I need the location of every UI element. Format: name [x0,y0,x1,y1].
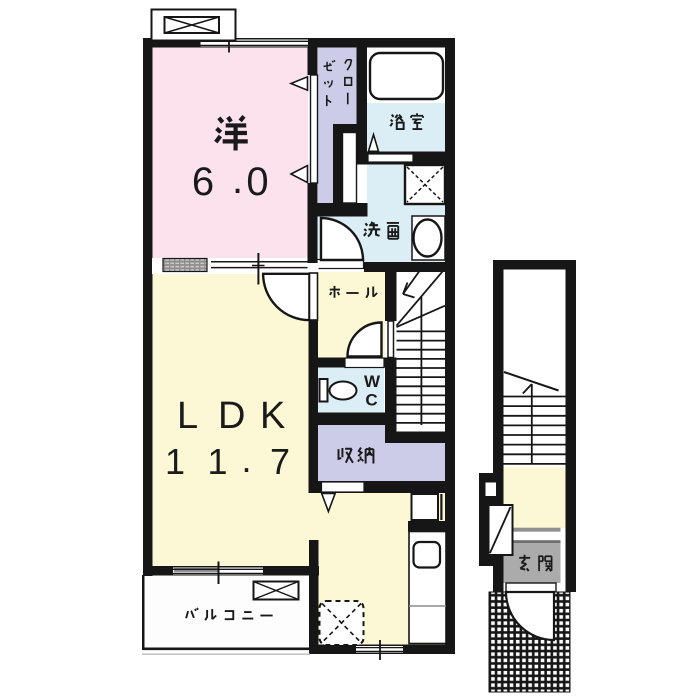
svg-text:K: K [260,395,285,437]
svg-text:7: 7 [270,441,290,482]
svg-text:L: L [177,395,198,437]
svg-text:6: 6 [192,160,214,204]
svg-text:0: 0 [246,160,268,204]
svg-text:.: . [232,158,243,202]
svg-text:C: C [365,391,377,410]
svg-text:.: . [241,439,251,480]
svg-text:D: D [218,395,245,437]
svg-text:1: 1 [165,441,185,482]
svg-text:1: 1 [207,441,227,482]
svg-text:W: W [364,372,381,391]
